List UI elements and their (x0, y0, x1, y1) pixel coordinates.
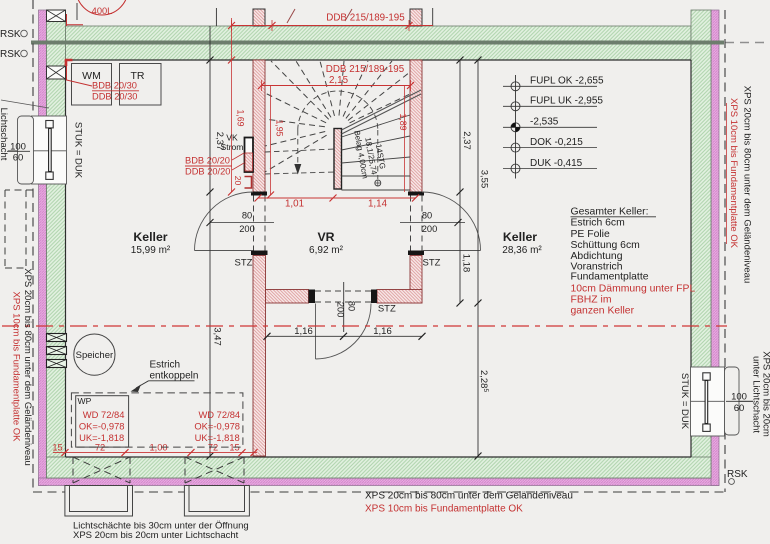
svg-text:Keller: Keller (133, 230, 167, 244)
svg-text:BDB 20/20: BDB 20/20 (185, 156, 230, 166)
svg-text:Lichtschacht: Lichtschacht (0, 108, 9, 161)
svg-text:STUK = DUK: STUK = DUK (73, 122, 84, 179)
svg-text:-2,535: -2,535 (530, 117, 559, 128)
svg-text:200: 200 (335, 302, 345, 318)
svg-text:XPS 10cm bis Fundamentplatte O: XPS 10cm bis Fundamentplatte OK (11, 292, 22, 443)
svg-text:1,16: 1,16 (294, 326, 313, 337)
svg-text:Schüttung 6cm: Schüttung 6cm (571, 240, 640, 251)
svg-text:XPS 20cm bis 20cm unter Lichts: XPS 20cm bis 20cm unter Lichtschacht (73, 530, 239, 541)
svg-text:Estrich 6cm: Estrich 6cm (571, 217, 625, 228)
svg-text:Gesamter Keller:: Gesamter Keller: (571, 206, 649, 217)
svg-text:1,01: 1,01 (285, 199, 304, 210)
svg-text:100: 100 (731, 392, 747, 403)
svg-text:DOK -0,215: DOK -0,215 (530, 137, 583, 148)
svg-text:3,47: 3,47 (212, 327, 223, 346)
svg-text:VK: VK (226, 133, 238, 143)
svg-text:1,16: 1,16 (373, 326, 392, 337)
svg-text:15: 15 (52, 443, 62, 453)
svg-text:200: 200 (239, 224, 255, 234)
svg-text:Abdichtung: Abdichtung (571, 251, 623, 262)
svg-text:WD 72/84: WD 72/84 (83, 409, 125, 420)
svg-text:VR: VR (317, 230, 334, 244)
svg-text:DDB 20/20: DDB 20/20 (185, 167, 230, 177)
svg-text:WD 72/84: WD 72/84 (198, 409, 240, 420)
svg-text:entkoppeln: entkoppeln (150, 371, 199, 382)
svg-text:FBHZ im: FBHZ im (571, 294, 612, 305)
svg-text:2,37: 2,37 (461, 131, 472, 150)
svg-text:UK=-1,818: UK=-1,818 (195, 432, 240, 443)
svg-text:2,15: 2,15 (329, 75, 349, 86)
svg-text:STZ: STZ (423, 258, 441, 269)
svg-text:28,36 m²: 28,36 m² (502, 245, 542, 256)
svg-text:ganzen Keller: ganzen Keller (571, 305, 635, 316)
svg-text:DDB 215/189-195: DDB 215/189-195 (326, 13, 405, 24)
svg-text:1,89: 1,89 (398, 113, 408, 130)
svg-text:XPS 20cm bis 80cm unter dem Ge: XPS 20cm bis 80cm unter dem Geländenivea… (365, 491, 573, 502)
svg-text:DDB 215/189-195: DDB 215/189-195 (326, 64, 405, 75)
svg-text:Estrich: Estrich (150, 359, 181, 370)
svg-text:100: 100 (10, 142, 26, 153)
svg-text:unter Lichtschacht: unter Lichtschacht (751, 356, 762, 433)
svg-text:XPS 20cm bis 80cm unter dem Ge: XPS 20cm bis 80cm unter dem Geländenivea… (22, 268, 33, 466)
svg-text:Keller: Keller (503, 230, 537, 244)
svg-text:BDB 20/30: BDB 20/30 (92, 81, 137, 91)
svg-text:200: 200 (422, 224, 438, 234)
svg-text:1,14: 1,14 (368, 199, 388, 210)
svg-text:STZ: STZ (378, 304, 396, 315)
svg-text:DUK -0,415: DUK -0,415 (530, 158, 583, 169)
svg-text:20: 20 (233, 176, 243, 186)
svg-text:RSK: RSK (0, 29, 21, 40)
svg-text:OK=-0,978: OK=-0,978 (194, 420, 240, 431)
svg-text:STZ: STZ (235, 258, 253, 269)
svg-text:60: 60 (13, 153, 24, 164)
svg-text:RSK: RSK (727, 469, 748, 480)
svg-text:1,95: 1,95 (274, 119, 284, 136)
svg-text:Speicher: Speicher (76, 350, 114, 361)
svg-text:80: 80 (242, 210, 252, 220)
svg-text:1,18: 1,18 (461, 254, 472, 273)
svg-text:XPS 10cm bis Fundamentplatte O: XPS 10cm bis Fundamentplatte OK (728, 98, 739, 249)
svg-text:FUPL UK -2,955: FUPL UK -2,955 (530, 96, 603, 107)
svg-text:DDB 20/30: DDB 20/30 (92, 92, 137, 102)
svg-text:PE Folie: PE Folie (571, 229, 610, 240)
svg-text:XPS 20cm bis 80cm unter dem Ge: XPS 20cm bis 80cm unter dem Geländenivea… (742, 86, 753, 284)
svg-text:Fundamentplatte: Fundamentplatte (571, 271, 649, 282)
svg-text:60: 60 (734, 403, 745, 414)
svg-text:80: 80 (422, 210, 432, 220)
svg-text:STUK = DUK: STUK = DUK (679, 373, 690, 430)
svg-text:10cm Dämmung unter FPL: 10cm Dämmung unter FPL (571, 283, 696, 294)
svg-text:UK=-1,818: UK=-1,818 (79, 432, 124, 443)
svg-text:1,69: 1,69 (236, 109, 246, 126)
svg-text:400L: 400L (92, 6, 113, 16)
svg-text:80: 80 (346, 301, 356, 311)
svg-text:WP: WP (78, 396, 92, 406)
svg-text:15,99 m²: 15,99 m² (131, 245, 171, 256)
svg-text:Strom: Strom (221, 142, 244, 152)
svg-text:3,55: 3,55 (479, 170, 490, 189)
svg-text:6,92 m²: 6,92 m² (309, 245, 344, 256)
svg-text:RSK: RSK (0, 49, 21, 60)
svg-text:OK=-0,978: OK=-0,978 (79, 420, 125, 431)
svg-text:FUPL OK -2,655: FUPL OK -2,655 (530, 76, 604, 87)
svg-text:XPS 10cm bis Fundamentplatte O: XPS 10cm bis Fundamentplatte OK (365, 504, 523, 515)
